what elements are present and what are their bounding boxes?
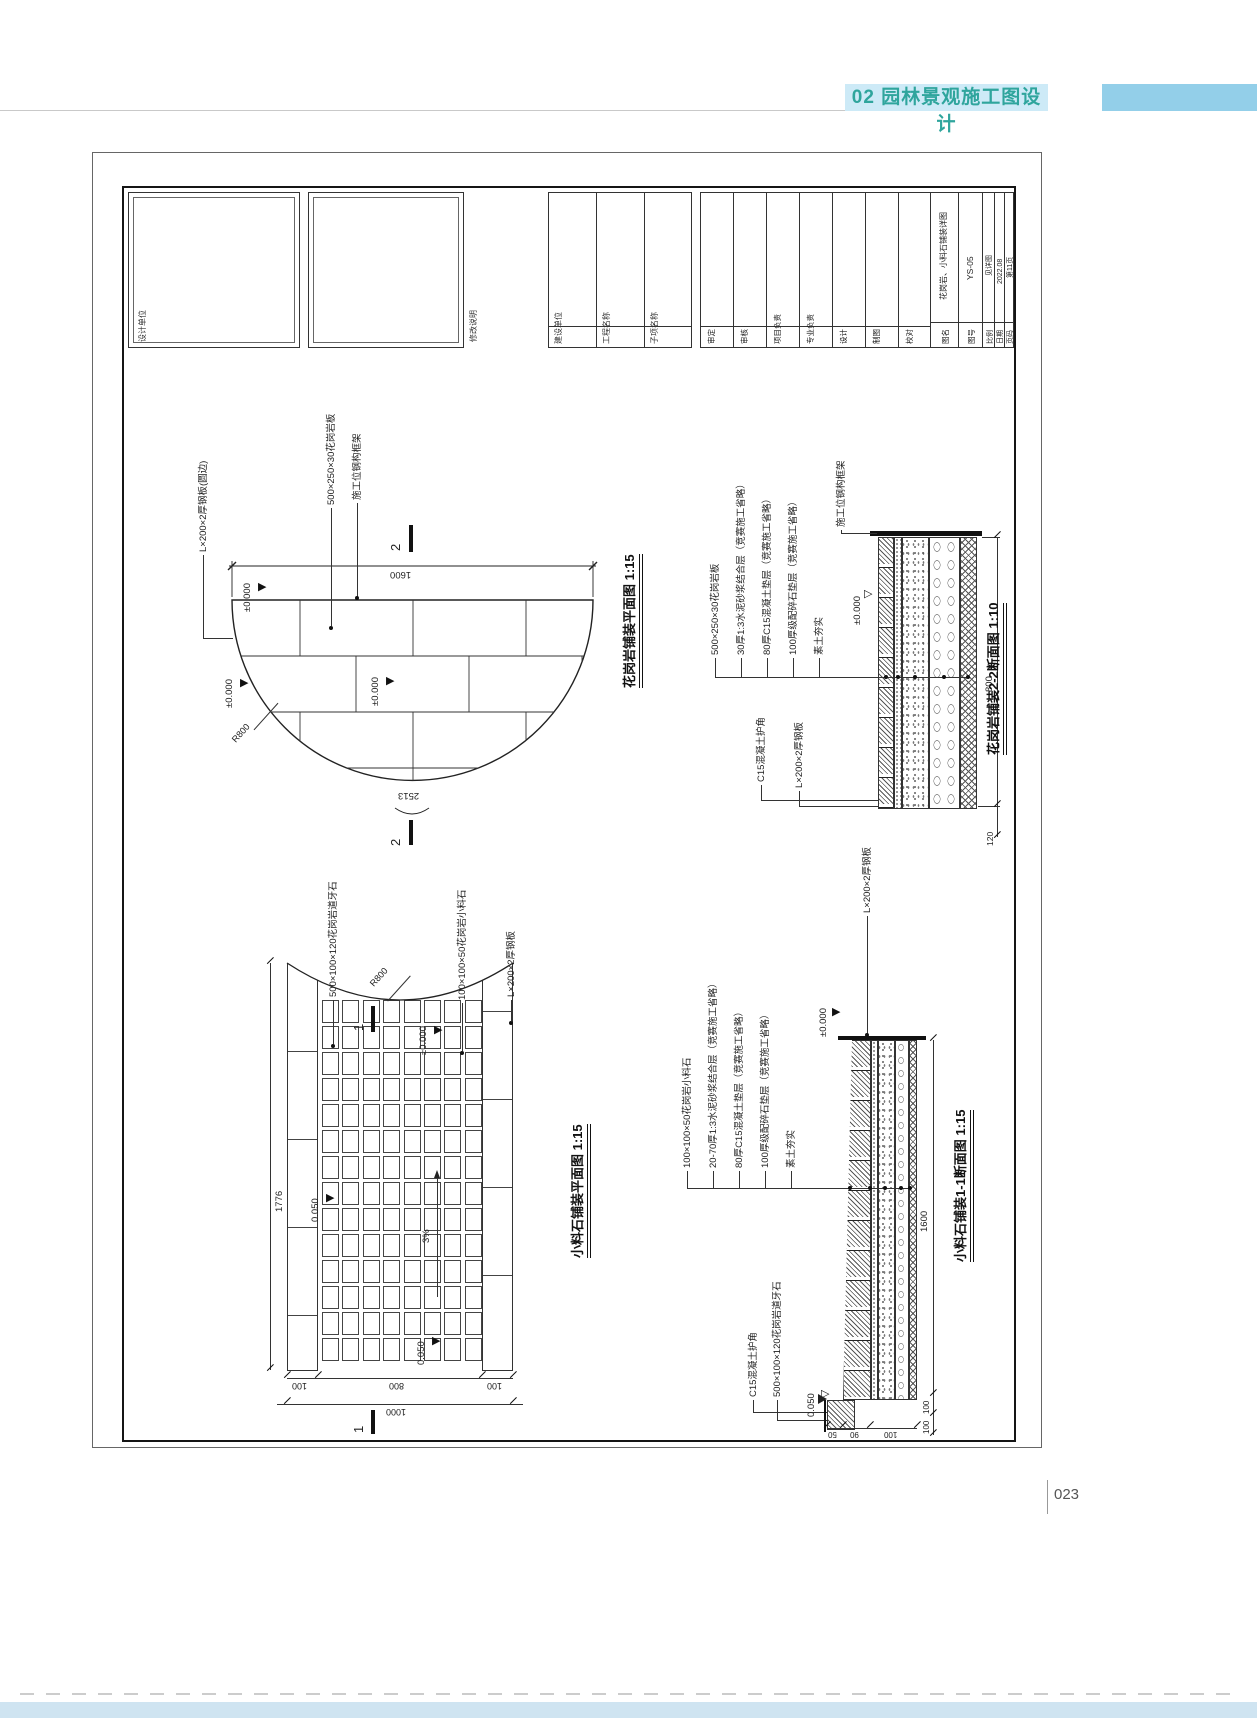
stone-cell (444, 1104, 461, 1127)
sec22-dot-5 (966, 675, 970, 679)
plan2-slope-arrow-line (437, 1177, 438, 1297)
plan2-label-stone: 100×100×50花岗岩小料石 (457, 890, 469, 1000)
plan1-leader-slab (331, 508, 332, 626)
stone-cell (465, 1260, 482, 1283)
plan1-dim-arc: 2513 (398, 790, 419, 801)
plan1-elev-3-triangle: ▶ (386, 676, 394, 687)
info-divider-2 (982, 192, 983, 348)
sec11-layer-concrete (878, 1040, 895, 1400)
stone-cell (404, 1312, 421, 1335)
stone-cell (404, 1130, 421, 1153)
stone-cell (383, 1104, 400, 1127)
stone-cell (444, 1182, 461, 1205)
titleblock-build-unit-label: 建设单位 (553, 312, 565, 344)
stone-cell (424, 1052, 441, 1075)
titleblock-project-rule (548, 326, 692, 327)
sec22-stub-2 (741, 658, 742, 677)
info-rule (930, 322, 1014, 323)
titleblock-design-unit-inner (133, 197, 295, 343)
plan2-section-mark-bottom: 1 (353, 1426, 365, 1433)
sec11-stub-5 (791, 1171, 792, 1188)
sig-label-draft: 制图 (871, 329, 883, 344)
sec22-stub-3 (767, 658, 768, 677)
stone-cell (444, 1208, 461, 1231)
sec11-label-soil: 素土夯实 (786, 1130, 798, 1168)
stone-cell (383, 1078, 400, 1101)
stone-cell (383, 1156, 400, 1179)
plan2-dim-b2: 800 (389, 1381, 404, 1391)
plan1-section-mark-bottom: 2 (390, 839, 402, 846)
stone-cell (424, 1312, 441, 1335)
stone-cell (342, 1260, 359, 1283)
sec11-dim-d2: 100 (921, 1421, 933, 1434)
plan2-arc (260, 950, 540, 1028)
plan2-section-bar-top (371, 1006, 375, 1032)
stone-cell (444, 1026, 461, 1049)
sec11-curb-leader-v (777, 1400, 778, 1420)
sec11-dim-len: 1600 (919, 1211, 931, 1232)
plan2-section-mark-top: 1 (353, 1024, 365, 1031)
stone-cell (444, 1130, 461, 1153)
stone-cell (363, 1052, 380, 1075)
stone-cell (424, 1260, 441, 1283)
stone-cell (404, 1156, 421, 1179)
sec22-stub-1 (715, 658, 716, 677)
sec22-layer-concrete (902, 537, 929, 809)
plan1-dim-width: 1600 (390, 569, 411, 580)
sec11-dot-4 (899, 1186, 903, 1190)
sec22-corner-leader-v (761, 785, 762, 800)
stone-cell (342, 1052, 359, 1075)
sec22-layer-gravel (929, 537, 960, 809)
sec11-label-stones: 100×100×50花岗岩小料石 (682, 1058, 694, 1168)
stone-cell (444, 1312, 461, 1335)
plan1-leader-frame (357, 503, 358, 597)
chapter-header: 02 园林景观施工图设计 (845, 84, 1048, 111)
stone-cell (363, 1104, 380, 1127)
page-number: 023 (1054, 1486, 1079, 1503)
plan1-label-frame: 施工位钢构框架 (352, 433, 364, 500)
sec11-label-curb: 500×100×120花岗岩道牙石 (772, 1281, 784, 1397)
sec22-frame-leader-h (841, 533, 877, 534)
stone-cell (404, 1286, 421, 1309)
plan2-curb-dot (331, 1044, 335, 1048)
plan1-leader-steel-h (203, 638, 233, 639)
plan2-dim-total: 1000 (386, 1407, 406, 1417)
stone-cell (424, 1104, 441, 1127)
stone-cell (465, 1026, 482, 1049)
stone-cell (444, 1078, 461, 1101)
stone-cell (465, 1312, 482, 1335)
stone-cell (322, 1234, 339, 1257)
sec22-label-concrete: 80厚C15混凝土垫层（竞赛施工省略） (762, 494, 774, 655)
plan2-elev2-a: 0.050 (310, 1198, 322, 1222)
stone-cell (322, 1338, 339, 1361)
plan2-elev2-a-triangle: ▶ (326, 1193, 334, 1204)
sec11-dot-1 (848, 1186, 852, 1190)
titleblock-subitem-label: 子项名称 (649, 312, 661, 344)
plan1-leader-slab-dot (329, 626, 333, 630)
plan1-elev-2: ±0.000 (224, 679, 236, 708)
sec11-stub-3 (739, 1171, 740, 1188)
info-label-number: 图号 (966, 329, 978, 344)
plan2-stone-dot (460, 1051, 464, 1055)
stone-cell (363, 1156, 380, 1179)
stone-cell (444, 1260, 461, 1283)
plan2-elev2-b-triangle: ▶ (432, 1336, 440, 1347)
stone-cell (444, 1052, 461, 1075)
stone-cell (465, 1078, 482, 1101)
sec11-dot-3 (883, 1186, 887, 1190)
stone-cell (363, 1286, 380, 1309)
sec22-dot-3 (913, 675, 917, 679)
sig-label-approved: 审定 (706, 329, 718, 344)
stone-cell (444, 1286, 461, 1309)
plan1-section-bar-top (409, 525, 413, 552)
sec11-title: 小料石铺装1-1断面图 1:15 (953, 1110, 974, 1262)
sec22-stub-4 (793, 658, 794, 677)
sig-divider-5 (865, 192, 866, 348)
plan1-section-mark-top: 2 (390, 544, 402, 551)
stone-cell (322, 1312, 339, 1335)
plan1-elev-1-triangle: ▶ (258, 582, 266, 593)
sec22-dot-1 (884, 675, 888, 679)
stone-cell (342, 1286, 359, 1309)
stone-cell (322, 1130, 339, 1153)
stone-cell (424, 1286, 441, 1309)
plan1-title: 花岗岩铺装平面图 1:15 (622, 554, 643, 688)
stone-cell (383, 1208, 400, 1231)
sec11-stub-1 (687, 1171, 688, 1188)
granite-plan-drawing (227, 515, 599, 860)
stone-cell (383, 1182, 400, 1205)
page-number-rule (1047, 1480, 1048, 1514)
plan2-dim-total-line (277, 1404, 523, 1405)
plan2-label-curb: 500×100×120花岗岩道牙石 (328, 881, 340, 997)
stone-cell (342, 1078, 359, 1101)
plan2-elev-triangle: ▶ (434, 1025, 442, 1036)
titleblock-project-divider-1 (596, 192, 597, 348)
stone-cell (424, 1208, 441, 1231)
titleblock-revision-inner (313, 197, 459, 343)
stone-cell (465, 1338, 482, 1361)
sec22-dim-edge: 120 (984, 832, 996, 846)
sec11-dim-len-line (933, 1040, 934, 1395)
sec11-label-concrete: 80厚C15混凝土垫层（竞赛施工省略） (734, 1007, 746, 1168)
stone-cell (342, 1104, 359, 1127)
sec22-label-granite: 500×250×30花岗岩板 (710, 564, 722, 655)
stone-cell (342, 1156, 359, 1179)
stone-cell (424, 1078, 441, 1101)
plan2-steel-dot (509, 1021, 513, 1025)
sig-divider-4 (832, 192, 833, 348)
sig-label-reviewed: 审核 (739, 329, 751, 344)
sec11-label-gravel: 100厚级配碎石垫层（竞赛施工省略） (760, 1010, 772, 1168)
sec22-steel-leader-h (799, 806, 878, 807)
stone-cell (404, 1052, 421, 1075)
stone-cell (465, 1130, 482, 1153)
sec11-dim-b2: 90 (850, 1430, 859, 1439)
stone-cell (342, 1312, 359, 1335)
sec11-dot-5 (908, 1186, 912, 1190)
stone-cell (465, 1052, 482, 1075)
stone-cell (363, 1234, 380, 1257)
sec11-layer-gravel (895, 1040, 909, 1400)
sec11-layer-mortar (871, 1040, 878, 1400)
book-page: 02 园林景观施工图设计 设计单位 修改说明 建设单位 工程名称 子项名称 审定… (0, 0, 1257, 1718)
plan1-section-bar-bottom (409, 820, 413, 845)
stone-cell (383, 1286, 400, 1309)
titleblock-revision-label: 修改说明 (468, 310, 480, 342)
chapter-title: 02 园林景观施工图设计 (852, 87, 1041, 135)
stone-cell (383, 1052, 400, 1075)
sec22-dim-ext-top (982, 537, 1000, 538)
stone-cell (444, 1338, 461, 1361)
sec22-label-steel: L×200×2厚钢板 (794, 722, 806, 788)
plan1-elev-3: ±0.000 (370, 677, 382, 706)
stone-cell (342, 1182, 359, 1205)
stone-cell (322, 1104, 339, 1127)
stone-cell (322, 1286, 339, 1309)
stone-cell (465, 1156, 482, 1179)
sec22-label-frame: 施工位钢构框架 (836, 460, 848, 527)
sig-label-design: 设计 (838, 329, 850, 344)
stone-cell (383, 1260, 400, 1283)
stone-cell (342, 1338, 359, 1361)
stone-cell (363, 1182, 380, 1205)
stone-cell (404, 1208, 421, 1231)
sec11-elev-triangle: ▶ (832, 1007, 840, 1018)
sec22-corner-leader-h (761, 800, 878, 801)
stone-cell (465, 1208, 482, 1231)
header-accent-block (1102, 84, 1257, 111)
plan1-elev-2-triangle: ▶ (240, 678, 248, 689)
sec11-elev2: 0.050 (806, 1393, 818, 1417)
plan2-steel-leader (511, 1000, 512, 1021)
sec11-dim-d1: 100 (921, 1401, 933, 1414)
plan2-elev: ±0.000 (418, 1026, 430, 1055)
sec22-steel-cap (870, 531, 982, 536)
stone-cell (424, 1182, 441, 1205)
titleblock-project-box (548, 192, 692, 348)
sec22-label-soil: 素土夯实 (814, 617, 826, 655)
stone-cell (322, 1078, 339, 1101)
stone-cell (383, 1026, 400, 1049)
stone-cell (383, 1130, 400, 1153)
plan2-label-steel: L×200×2厚钢板 (506, 931, 518, 997)
titleblock-project-name-label: 工程名称 (601, 312, 613, 344)
sec11-stub-4 (765, 1171, 766, 1188)
sec11-label-steel: L×200×2厚钢板 (862, 847, 874, 913)
stone-cell (363, 1208, 380, 1231)
stone-cell (404, 1260, 421, 1283)
plan1-leader-frame-dot (355, 596, 359, 600)
stone-cell (465, 1182, 482, 1205)
info-label-name: 图名 (940, 329, 952, 344)
stone-cell (404, 1104, 421, 1127)
sig-divider-2 (766, 192, 767, 348)
stone-cell (383, 1338, 400, 1361)
stone-cell (383, 1234, 400, 1257)
sig-divider-1 (733, 192, 734, 348)
plan2-title: 小料石铺装平面图 1:15 (570, 1124, 591, 1258)
stone-cell (363, 1078, 380, 1101)
stone-cell (363, 1260, 380, 1283)
stone-grid (322, 1000, 482, 1363)
sec22-elev: ±0.000 (852, 596, 864, 625)
sec22-layer-granite (878, 537, 894, 809)
plan2-elev2-b: 0.050 (416, 1341, 428, 1365)
stone-cell (465, 1234, 482, 1257)
stone-cell (322, 1052, 339, 1075)
footer-band (0, 1702, 1257, 1718)
sig-divider-6 (898, 192, 899, 348)
stone-cell (322, 1156, 339, 1179)
sig-divider-3 (799, 192, 800, 348)
sec11-layer-soil (909, 1040, 917, 1400)
titleblock-project-divider-2 (644, 192, 645, 348)
sec22-steel-leader-v (799, 791, 800, 806)
sec22-layer-soil (960, 537, 977, 809)
stone-cell (404, 1234, 421, 1257)
sec11-steel-leader (867, 916, 868, 1036)
sec22-dot-2 (896, 675, 900, 679)
sec22-label-corner: C15混凝土护角 (756, 717, 768, 782)
header-rule (0, 110, 990, 111)
sec22-dot-4 (942, 675, 946, 679)
plan1-leader-steel-v (203, 555, 204, 638)
sec22-label-gravel: 100厚级配碎石垫层（竞赛施工省略） (788, 497, 800, 655)
footer-dotted-edge (20, 1693, 1235, 1695)
sec11-dim-b3: 100 (884, 1430, 897, 1439)
sec22-leader-collector (715, 677, 968, 678)
sec11-dim-d-line (933, 1395, 934, 1435)
drawing-number-value: YS-05 (964, 256, 976, 280)
sec22-stub-5 (819, 658, 820, 677)
info-divider-1 (958, 192, 959, 348)
stone-cell (404, 1078, 421, 1101)
plan2-dim-len: 1776 (274, 1191, 286, 1212)
stone-cell (424, 1130, 441, 1153)
plan2-curb-leader (333, 1000, 334, 1044)
stone-cell (444, 1156, 461, 1179)
sec11-corner-leader-v (753, 1400, 754, 1412)
sec11-leader-collector (687, 1188, 912, 1189)
plan2-stone-leader (462, 1003, 463, 1051)
plan2-dim-b3: 100 (487, 1381, 502, 1391)
stone-cell (363, 1312, 380, 1335)
sec22-layer-mortar (894, 537, 902, 809)
sig-label-check: 校对 (904, 329, 916, 344)
sec11-steel-dot (865, 1033, 869, 1037)
drawing-title-value: 花岗岩、小料石铺装详图 (938, 212, 950, 300)
page-code-value: 第11页 (1005, 257, 1017, 278)
sec11-label-corner: C15混凝土护角 (748, 1332, 760, 1397)
plan1-label-slab: 500×250×30花岗岩板 (326, 414, 338, 505)
stone-cell (383, 1312, 400, 1335)
stone-cell (404, 1182, 421, 1205)
plan2-dim-b1: 100 (292, 1381, 307, 1391)
sig-label-project-lead: 项目负责 (772, 314, 784, 344)
stone-cell (465, 1104, 482, 1127)
stone-cell (444, 1234, 461, 1257)
sec22-elev-triangle: ▷ (864, 589, 872, 600)
stone-cell (342, 1208, 359, 1231)
plan1-elev-1: ±0.000 (242, 583, 254, 612)
sec11-label-mortar: 20-70厚1:3水泥砂浆结合层（竞赛施工省略） (708, 978, 720, 1168)
stone-cell (342, 1130, 359, 1153)
plan2-slope-arrowhead (434, 1170, 440, 1178)
sec11-dim-b1: 50 (828, 1430, 837, 1439)
sig-label-discipline-lead: 专业负责 (805, 314, 817, 344)
stone-cell (465, 1286, 482, 1309)
info-label-page: 页码 (1005, 330, 1017, 344)
stone-cell (363, 1338, 380, 1361)
sec22-label-mortar: 30厚1:3水泥砂浆结合层（竞赛施工省略） (736, 479, 748, 655)
titleblock-design-unit-label: 设计单位 (137, 310, 149, 342)
plan2-slope: 3% (421, 1229, 433, 1243)
plan2-dim-len-line (270, 963, 271, 1370)
stone-cell (322, 1208, 339, 1231)
sec22-title: 花岗岩铺装2-2断面图 1:10 (986, 603, 1007, 755)
plan2-section-bar-bottom (371, 1410, 375, 1434)
plan1-label-steel: L×200×2厚钢板(圆边) (198, 461, 210, 552)
sec11-stub-2 (713, 1171, 714, 1188)
stone-cell (342, 1234, 359, 1257)
stone-cell (322, 1260, 339, 1283)
sec11-dot-2 (868, 1186, 872, 1190)
stone-cell (363, 1130, 380, 1153)
sec11-elev: ±0.000 (818, 1008, 830, 1037)
